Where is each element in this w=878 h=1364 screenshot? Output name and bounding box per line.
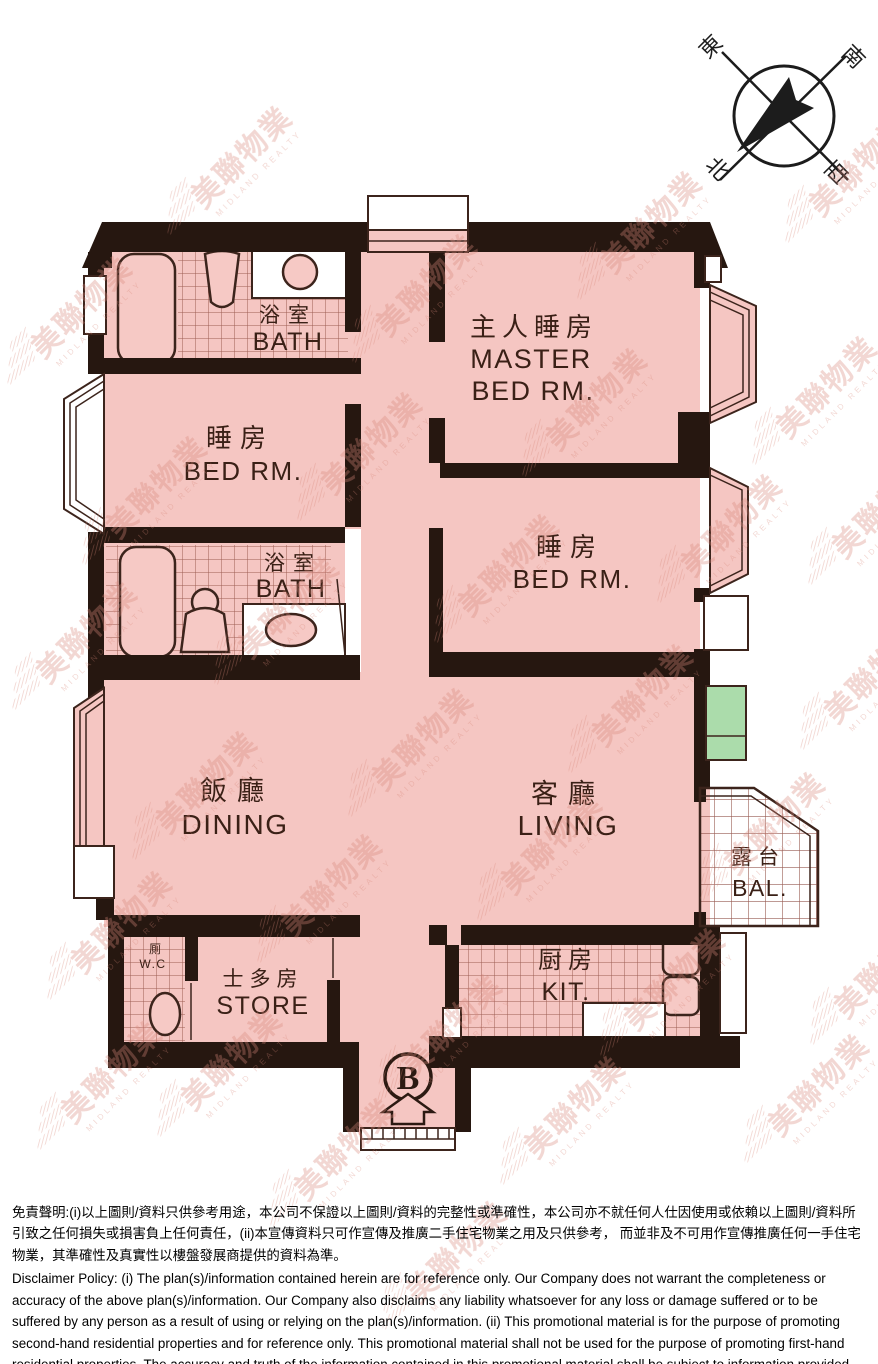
room-label-master-bedroom: 主人睡房 MASTER BED RM. — [470, 312, 598, 406]
svg-text:士多房: 士多房 — [223, 968, 304, 991]
disclaimer-zh: 免責聲明:(i)以上圖則/資料只供參考用途，本公司不保證以上圖則/資料的完整性或… — [12, 1202, 866, 1266]
midland-watermark: 美聯物業MIDLAND REALTY — [790, 904, 878, 1064]
compass-north-label: 北 — [701, 152, 734, 185]
midland-watermark: 美聯物業MIDLAND REALTY — [724, 1022, 878, 1182]
compass-needle-icon — [737, 77, 814, 152]
svg-text:KIT.: KIT. — [541, 978, 590, 1006]
upper-duct — [368, 196, 468, 230]
basin-icon — [283, 255, 317, 289]
svg-text:浴室: 浴室 — [259, 304, 317, 327]
compass-south-label: 南 — [837, 40, 870, 73]
watermark-zh-text: 美聯物業 — [803, 108, 878, 223]
svg-text:W.C: W.C — [139, 957, 166, 971]
ac-platform — [74, 846, 114, 898]
svg-text:厨房: 厨房 — [538, 947, 598, 974]
floor-plan-canvas: 浴室 BATH 主人睡房 MASTER BED RM. 睡房 BED RM. 浴… — [0, 0, 878, 1364]
svg-text:厠: 厠 — [149, 942, 161, 956]
watermark-zh-text: 美聯物業 — [185, 100, 300, 215]
watermark-zh-text: 美聯物業 — [762, 1028, 877, 1143]
disclaimer-en: Disclaimer Policy: (i) The plan(s)/infor… — [12, 1268, 866, 1364]
midland-watermark: 美聯物業MIDLAND REALTY — [788, 444, 878, 604]
midland-watermark: 美聯物業MIDLAND REALTY — [780, 609, 878, 769]
midland-watermark: 美聯物業MIDLAND REALTY — [17, 1009, 177, 1169]
compass-east-label: 東 — [694, 30, 727, 63]
green-panel — [706, 686, 746, 760]
svg-text:BATH: BATH — [253, 328, 324, 356]
svg-text:MASTER: MASTER — [470, 344, 592, 374]
disclaimer-block: 免責聲明:(i)以上圖則/資料只供參考用途，本公司不保證以上圖則/資料的完整性或… — [12, 1202, 866, 1364]
room-label-bath-top: 浴室 BATH — [253, 304, 324, 356]
svg-text:睡房: 睡房 — [206, 423, 274, 453]
floorplan-page: 浴室 BATH 主人睡房 MASTER BED RM. 睡房 BED RM. 浴… — [0, 0, 878, 1364]
ac-platform — [704, 596, 748, 650]
svg-text:主人睡房: 主人睡房 — [470, 312, 598, 342]
toilet-icon — [205, 251, 239, 307]
